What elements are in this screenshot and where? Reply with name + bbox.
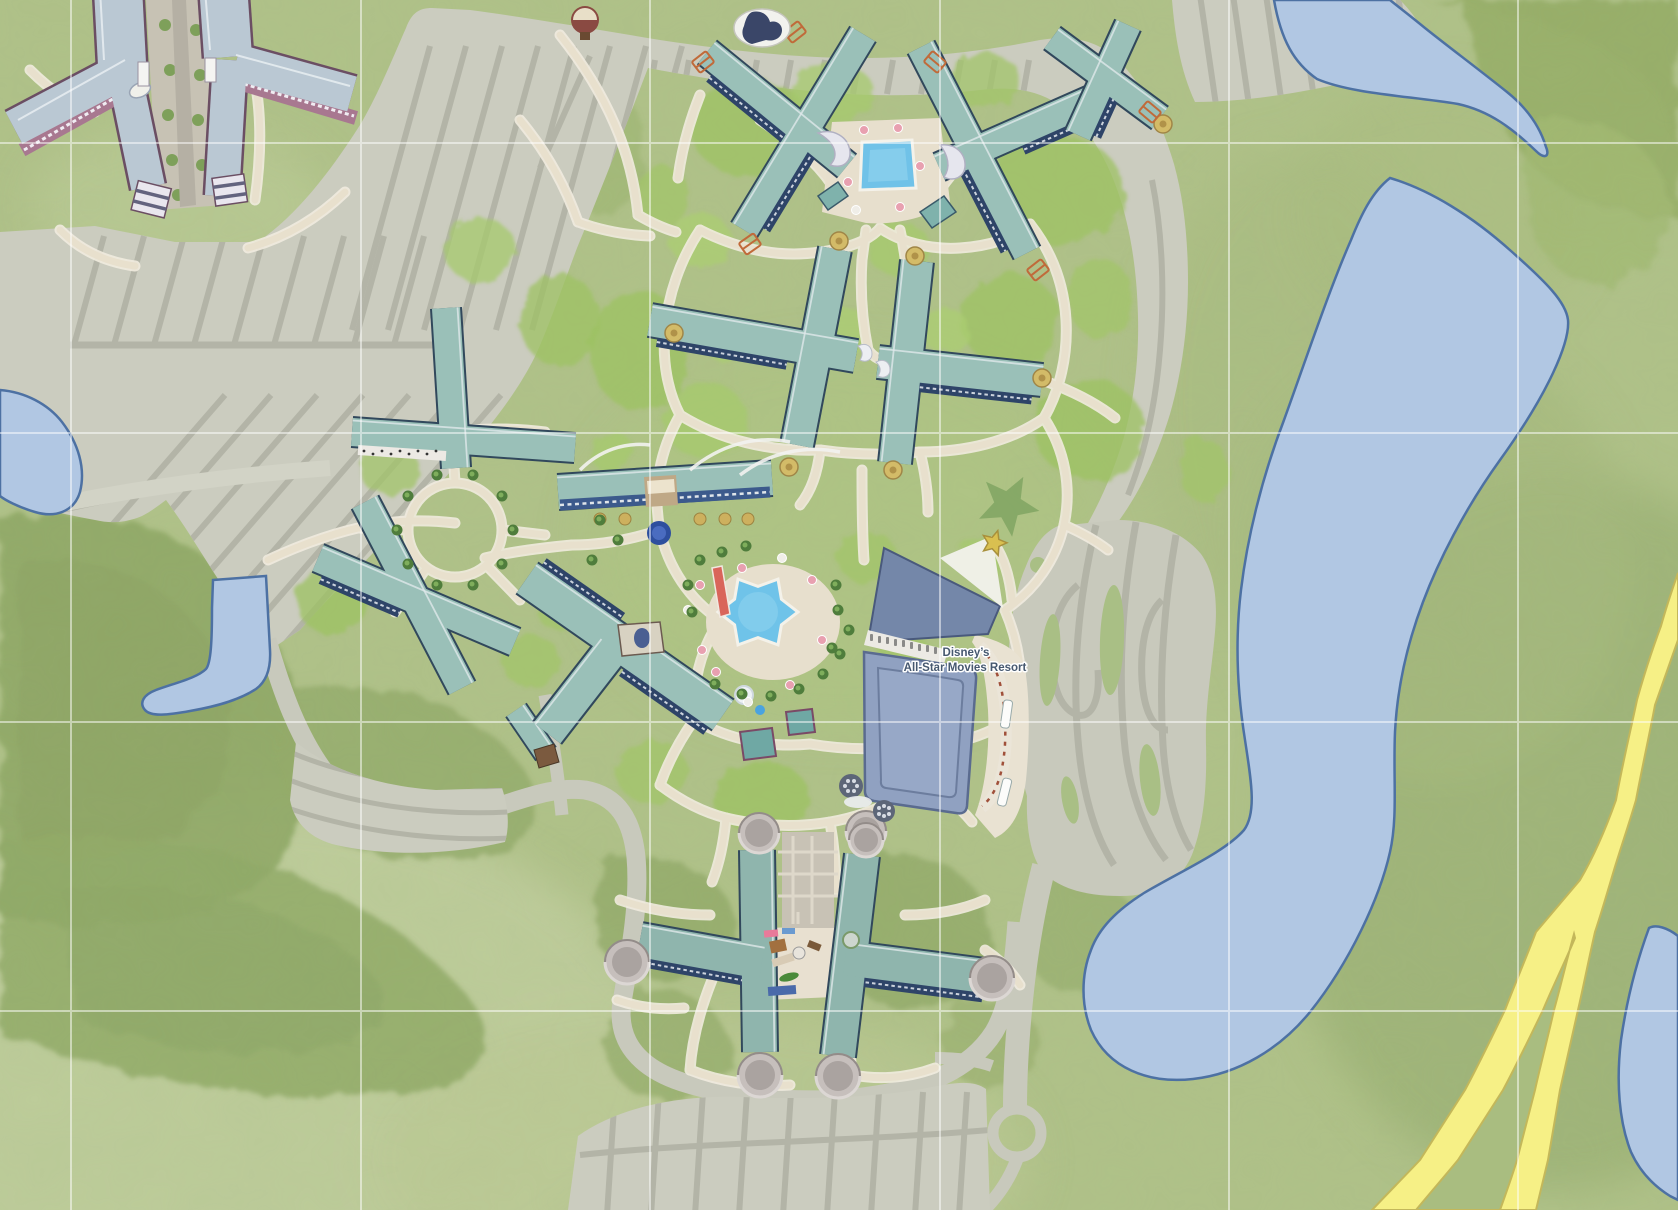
svg-text:Disney’s: Disney’s	[943, 647, 990, 659]
svg-text:All-Star Movies Resort: All-Star Movies Resort	[904, 662, 1027, 674]
